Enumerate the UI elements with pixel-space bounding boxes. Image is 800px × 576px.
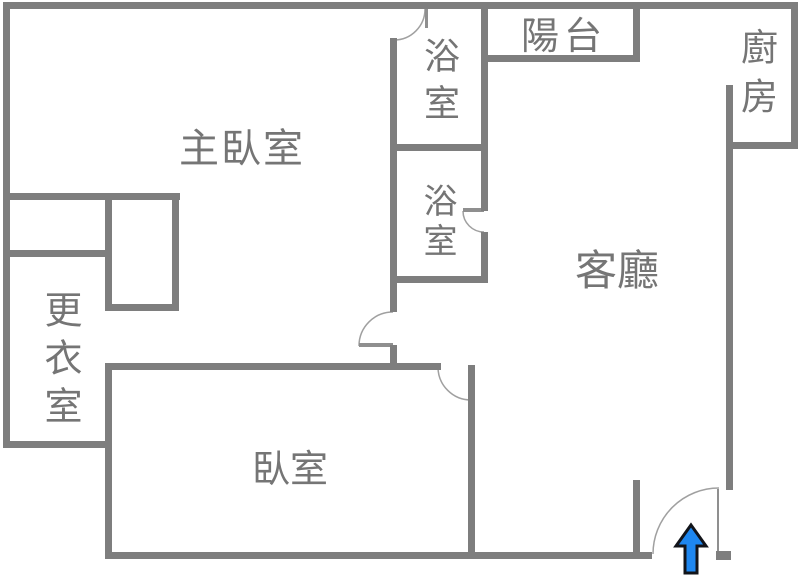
wall-outer-bottom [105,552,652,559]
wall-closet-right [172,193,179,311]
wall-bedroom-top [105,363,441,370]
wall-bath-mid-bottom [390,276,488,283]
door-bathroom-mid-swing [463,211,484,232]
door-entrance-leaf [717,489,719,552]
wall-outer-top [3,2,798,9]
door-master-suite-swing [359,312,393,346]
wall-bath-right-upper [481,2,488,211]
wall-outer-right [791,2,798,149]
wall-kitchen-left-long [726,85,733,490]
wall-bath-left [390,38,397,312]
entrance-arrow [676,525,706,573]
room-label-master-bedroom: 主臥室 [179,129,305,169]
room-label-balcony: 陽台 [521,17,607,55]
room-label-living-room: 客廳 [575,250,659,292]
room-label-kitchen: 廚房 [738,28,775,126]
room-label-bathroom-mid: 浴室 [420,183,454,263]
wall-bath-divider [390,144,488,151]
door-master-suite-leaf [359,343,393,347]
door-bathroom-top-swing [394,9,425,40]
wall-dressing-bottom [3,441,112,448]
wall-bedroom-left [105,363,112,559]
wall-entry-jamb [716,551,731,560]
wall-closet-shelf [3,250,112,257]
wall-entry-stub [633,480,640,559]
floor-plan: 主臥室浴室浴室陽台廚房客廳更衣室臥室 [0,0,800,576]
room-label-bedroom: 臥室 [252,450,328,488]
door-entrance-swing [653,488,719,554]
wall-kitchen-bottom [726,142,798,149]
door-swing-layer [0,0,800,576]
room-label-dressing-room: 更衣室 [41,290,79,434]
wall-balcony-right [633,2,640,62]
wall-master-divider [3,193,180,200]
door-bedroom-swing [438,367,471,400]
wall-closet-bottom [105,304,179,311]
wall-outer-left [3,2,10,448]
wall-bedroom-right [468,365,475,559]
room-label-bathroom-top: 浴室 [420,37,456,131]
door-bathroom-top-leaf [425,9,428,28]
